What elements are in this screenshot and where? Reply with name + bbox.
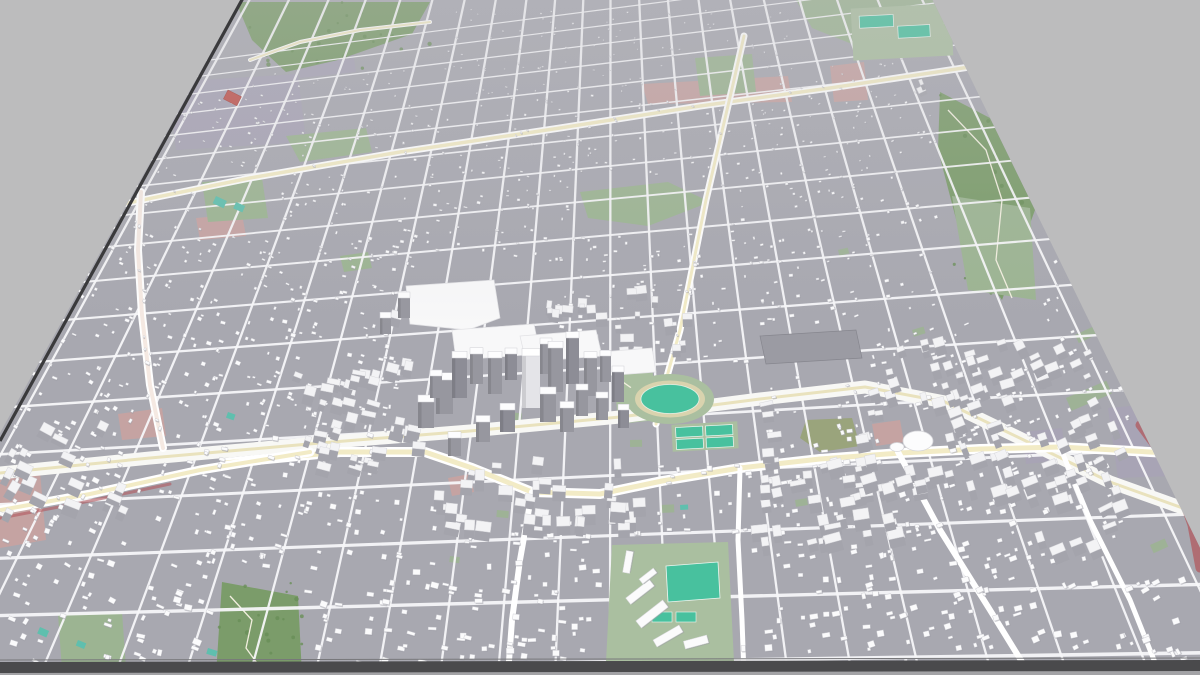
house [843,459,850,464]
tower-shade [470,354,473,384]
house [360,490,365,494]
pool [680,505,688,510]
house [923,631,930,637]
house [718,340,721,342]
house [984,587,989,593]
house [714,491,720,496]
house [883,553,886,558]
house [383,356,387,359]
house [226,535,229,539]
house [579,617,584,621]
house [158,382,161,385]
house [515,561,522,566]
house [528,638,537,642]
tree [266,639,270,643]
house [801,616,805,620]
house [883,401,887,405]
midrise-building [842,475,855,483]
house [403,644,408,648]
house [376,500,379,502]
house [511,532,515,535]
tree [289,582,291,584]
tower-building [505,348,517,354]
map-viewport[interactable] [0,0,1200,675]
house [807,649,811,653]
house [474,593,482,598]
house [1019,391,1022,394]
midrise-side [492,468,501,474]
tree [238,619,241,622]
house [400,518,403,521]
house [847,437,852,441]
house [877,382,879,385]
house [790,444,794,448]
midrise-side [552,491,565,501]
house [703,355,707,357]
house [579,564,587,570]
house [885,594,892,600]
tower-building [612,366,624,372]
house [285,336,288,340]
house [506,648,514,654]
tree [285,591,287,593]
midrise-building [761,475,770,483]
south-woods [216,582,302,675]
midrise-side [604,490,613,499]
house [313,412,316,416]
house [955,645,961,651]
large-gray-roof [760,330,862,364]
tree [282,618,284,620]
tower-building [548,341,563,348]
midrise-building [404,360,413,371]
house [772,396,776,399]
house [770,387,772,389]
tower-building [476,416,490,423]
tower-building [430,370,442,376]
tree [294,597,299,602]
house [784,541,791,544]
midrise-side [523,523,535,536]
house [881,361,886,364]
house [572,624,578,630]
midrise-side [576,526,584,537]
house [776,411,779,414]
house [751,548,757,553]
midrise-side [531,464,543,475]
city-map-3d-render[interactable] [0,0,1200,675]
house [906,530,911,533]
house [851,544,857,549]
house [846,401,850,404]
house [365,628,372,635]
tower-building [560,402,574,409]
midrise-building [434,490,444,500]
house [748,493,751,498]
house [381,554,387,560]
tower-building [540,387,556,394]
midrise-building [771,487,782,498]
tower-building [448,432,461,438]
midrise-side [542,525,550,534]
tower-building [596,392,608,398]
midrise-building [817,514,829,526]
house [385,344,390,349]
midrise-building [524,514,536,525]
midrise-side [412,448,425,457]
house [1026,555,1031,560]
tower-shade [540,344,543,374]
midrise-building [772,525,782,537]
midrise-building [672,344,680,350]
house [394,500,399,505]
house [684,528,690,530]
house [889,577,896,581]
house [987,557,991,561]
tree [300,614,304,618]
house [354,530,359,535]
house [246,402,249,406]
house [870,433,873,437]
midrise-building [762,448,774,457]
house [432,526,436,531]
house [176,434,180,438]
house [1014,548,1017,552]
midrise-side [762,545,770,556]
house [660,348,664,352]
house [839,428,841,430]
tower-building [576,384,588,390]
house [406,580,410,585]
house [809,488,813,493]
house [834,512,838,515]
midrise-side [557,526,571,535]
house [780,448,785,453]
house [823,612,829,617]
tower-shade [548,348,551,392]
midrise-building [614,459,621,470]
house [714,344,716,347]
house [367,592,374,597]
house [701,472,706,475]
house [844,606,849,611]
midrise-building [395,417,405,426]
map-bottom-edge [0,660,1200,673]
house [667,528,672,531]
house [300,504,305,507]
house [86,463,90,467]
house [126,383,129,386]
house [552,635,556,641]
house [1088,461,1093,466]
midrise-side [774,535,783,543]
house [511,580,517,583]
house [657,512,660,516]
sports-court [676,438,703,449]
tree [243,585,246,588]
house [781,504,784,507]
tree [269,652,272,655]
tower-building [470,348,483,354]
midrise-building [556,516,570,526]
house [906,640,910,645]
house [813,465,818,468]
house [359,406,362,408]
small-green [496,510,509,518]
midrise-building [533,481,539,490]
house [522,638,528,642]
tower-shade [448,438,451,456]
midrise-building [760,485,770,494]
house [528,575,531,580]
southwest-green-strip [58,612,126,670]
house [534,594,538,597]
midrise-side [460,487,472,495]
midrise-side [864,536,873,547]
tower-building [566,332,579,338]
midrise-side [673,351,681,358]
house [741,645,745,651]
midrise-building [605,483,614,491]
midrise-side [498,495,512,502]
house [658,465,664,468]
house [355,509,361,514]
house [575,577,578,582]
tree [265,632,269,636]
tower-shade [596,398,599,420]
arena-dome [903,431,933,451]
midrise-building [864,454,876,465]
house [586,617,591,621]
house [796,376,800,379]
house [928,525,932,529]
house [470,545,476,548]
midrise-building [751,524,768,534]
sports-court [675,426,702,437]
sports-court [705,425,732,436]
house [877,630,885,637]
midrise-building [803,471,812,479]
tower-shade [500,410,503,432]
house [744,360,749,364]
house [545,552,550,557]
midrise-building [532,456,544,466]
house [948,613,955,620]
house [513,542,520,545]
house [798,573,803,577]
house [1019,397,1023,401]
tree [257,614,260,617]
midrise-building [868,410,875,416]
house [917,569,924,574]
house [389,356,394,360]
midrise-side [433,500,443,510]
house [779,607,783,610]
midrise-building [553,485,566,491]
house [687,358,692,361]
midrise-building [620,334,633,342]
house [559,606,565,610]
midrise-building [538,478,552,485]
house [327,522,331,526]
house [602,343,604,345]
house [488,644,494,648]
house [854,390,856,393]
midrise-building [853,508,870,521]
midrise-building [475,469,485,480]
house [152,596,157,601]
tree [218,626,221,629]
house [585,534,590,539]
house [384,628,392,632]
house [765,629,774,634]
midrise-building [445,503,457,514]
house [786,513,790,517]
house [436,615,442,620]
tower-building [618,404,629,410]
campus-court [676,612,696,622]
midrise-side [618,530,630,538]
house [1082,556,1086,561]
house [1112,535,1116,538]
house [1037,474,1041,478]
house [389,580,394,586]
house [322,423,327,426]
house [572,632,575,636]
midrise-building [461,480,473,488]
house [863,625,871,629]
house [1053,630,1062,638]
east-courts [671,421,738,451]
house [595,582,601,587]
midrise-building [577,517,585,527]
tree [275,616,279,620]
house [821,450,828,453]
midrise-side [444,513,456,523]
midrise-building [761,537,769,547]
house [318,492,323,497]
house [733,359,738,362]
small-green [630,440,642,447]
house [968,609,973,613]
house [330,503,337,509]
house [402,609,408,614]
house [384,428,386,431]
midrise-side [533,490,539,498]
house [388,405,390,409]
house [395,383,397,385]
house [793,411,796,413]
house [773,503,777,508]
house [514,635,518,639]
campus-field [666,562,720,602]
house [373,339,377,342]
midrise-side [633,507,646,518]
tower-building [600,350,611,356]
house [797,523,800,526]
house [870,363,876,367]
school-campus [606,542,734,662]
midrise-building [582,505,595,514]
house [553,540,556,542]
tower-shade [418,402,422,428]
house [1070,631,1078,638]
midrise-building [498,485,512,495]
house [538,599,544,604]
midrise-side [614,469,621,478]
midrise-building [808,494,821,504]
house [809,613,818,619]
midrise-building [464,520,474,531]
house [776,553,780,557]
midrise-side [761,493,771,501]
house [958,546,966,552]
tree [291,636,295,640]
midrise-building [475,520,491,532]
house [543,582,547,586]
tower-shade [540,394,544,422]
house [954,334,957,337]
tower-building [522,349,540,357]
house [847,429,853,433]
oval-field [641,385,699,414]
house [272,436,278,441]
tower-shade [476,422,479,442]
house [551,646,556,649]
midrise-building [945,433,954,443]
house [252,376,255,378]
tower-shade [452,358,455,398]
house [873,591,879,596]
house [283,472,288,477]
midrise-building [618,522,630,530]
midrise-building [575,509,582,516]
house [513,614,520,620]
midrise-building [633,498,646,508]
house [783,564,790,569]
house [465,541,469,543]
tower-shade [576,390,579,416]
tower-building [488,352,502,359]
house [869,574,874,580]
house [887,550,891,553]
midrise-side [610,511,626,523]
house [482,646,487,651]
tower-shade [522,356,526,408]
house [949,561,957,566]
house [866,603,871,609]
house [256,514,262,520]
house [655,341,659,344]
house [798,543,803,545]
house [765,644,773,651]
oval-stadium [626,374,714,424]
tower-shade [560,408,563,432]
midrise-building [492,463,501,469]
house [554,590,558,593]
house [772,634,777,639]
house [745,471,751,476]
house [521,653,528,660]
house [299,332,302,334]
midrise-building [542,515,550,525]
house [838,416,842,419]
midrise-building [468,470,475,476]
house [553,650,560,656]
midrise-side [763,456,775,464]
tower-shade [430,376,433,398]
house [677,494,681,497]
